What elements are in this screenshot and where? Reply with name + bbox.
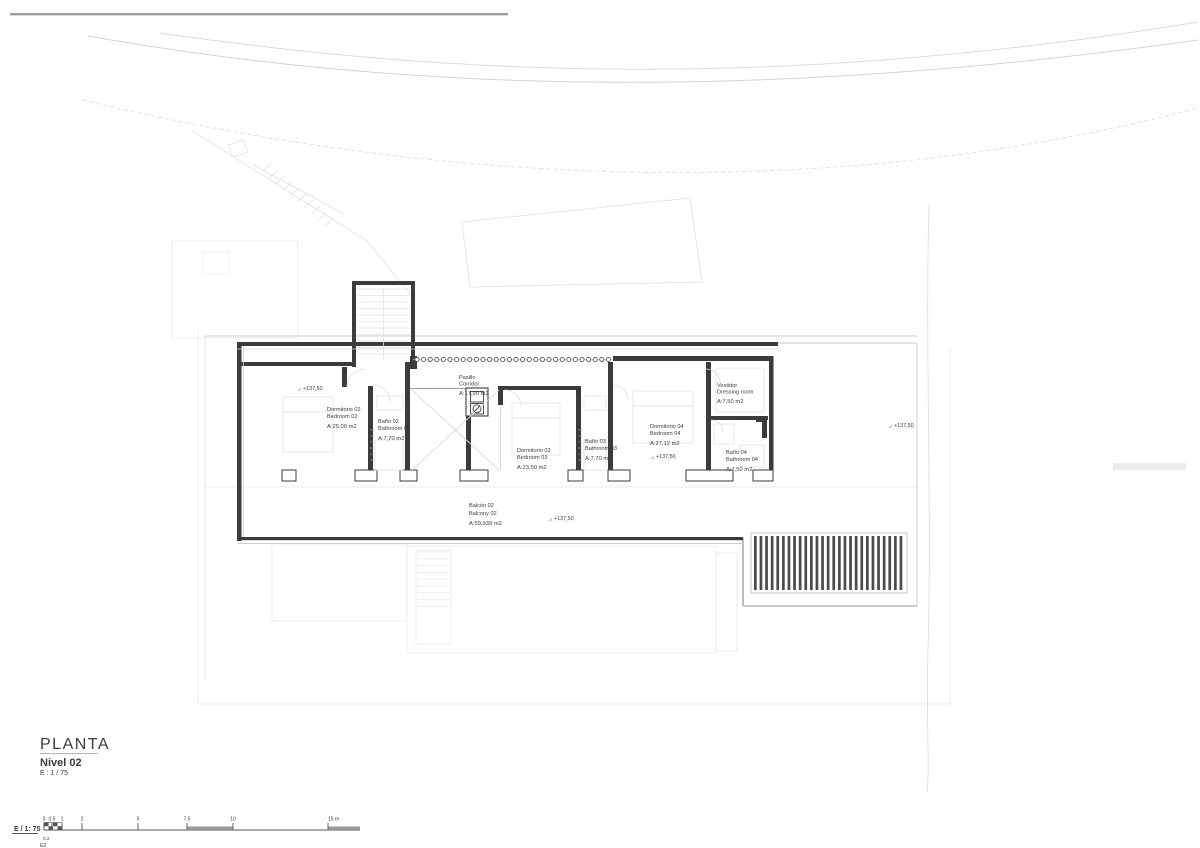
room-label-bedroom-02-es: Dormitorio 02 xyxy=(327,407,361,413)
level-mark-flag-icon xyxy=(297,387,301,391)
room-label-bathroom-04-es: Baño 04 xyxy=(726,450,747,456)
room-area-dressing-room: A:7,50 m2 xyxy=(717,399,743,405)
scale-tick-label: 15 m xyxy=(328,817,339,823)
gray-bar xyxy=(1113,463,1186,470)
scale-tick-label: 1 xyxy=(61,817,64,823)
room-label-corridor-en: Corridor xyxy=(459,382,479,388)
room-label-balcony-02-es: Balcón 02 xyxy=(469,503,494,509)
room-label-bathroom-04-en: Bathroom 04 xyxy=(726,457,758,463)
floor-plan-sheet: Dormitorio 02 Bedroom 02 A:25,00 m2 Baño… xyxy=(0,0,1200,848)
level-mark-flag-icon xyxy=(548,517,552,521)
room-area-bathroom-02: A:7,70 m2 xyxy=(378,436,404,442)
wall-accent-lines xyxy=(237,346,778,537)
room-label-bedroom-03-en: Bedroom 03 xyxy=(517,455,547,461)
room-label-bedroom-04-es: Dormitorio 04 xyxy=(650,424,684,430)
scale-tick-label: 0.5 xyxy=(49,817,56,823)
scale-tick-label: 10 xyxy=(230,817,236,823)
room-area-corridor: A:17,90 m2 xyxy=(459,391,489,397)
scale-bar: E / 1: 75 00.51257.51015 m 0.2 E2 xyxy=(12,817,360,848)
level-mark-value: +137,50 xyxy=(894,423,914,429)
room-label-dressing-room-es: Vestidor xyxy=(717,383,737,389)
scale-tick-label: 0 xyxy=(43,817,46,823)
room-label-bathroom-03-en: Bathroom 03 xyxy=(585,446,617,452)
room-label-balcony-02-en: Balcony 02 xyxy=(469,511,497,517)
room-label-bedroom-03-es: Dormitorio 03 xyxy=(517,448,551,454)
sheet-scale-note: E : 1 / 75 xyxy=(40,770,68,777)
scale-tick-label: 7.5 xyxy=(184,817,191,823)
site-hatch-band xyxy=(262,164,334,226)
sheet-top-border xyxy=(10,13,508,15)
room-area-balcony-02: A:59,939 m2 xyxy=(469,521,502,527)
room-area-bathroom-03: A:7,70 m2 xyxy=(585,456,611,462)
walls xyxy=(237,281,778,541)
pergola-louvers-icon xyxy=(751,533,907,593)
lower-stair-rungs xyxy=(417,552,450,606)
scale-bar-sheet-code: E2 xyxy=(40,843,46,848)
scale-bar-checker xyxy=(44,823,62,831)
level-mark-flag-icon xyxy=(888,424,892,428)
room-label-bathroom-03-es: Baño 03 xyxy=(585,439,606,445)
room-area-bedroom-04: A:27,12 m2 xyxy=(650,441,680,447)
room-label-bathroom-02-en: Bathroom 02 xyxy=(378,426,410,432)
column-pads xyxy=(282,470,773,481)
scale-bar-minor-tick: 0.2 xyxy=(43,836,50,841)
scale-bar-segments xyxy=(187,827,360,831)
level-mark-value: +137,50 xyxy=(303,386,323,392)
room-area-bedroom-03: A:23,50 m2 xyxy=(517,465,547,471)
level-mark-flag-icon xyxy=(650,455,654,459)
title-block: PLANTA Nivel 02 E : 1 / 75 xyxy=(40,736,110,777)
scale-tick-label: 5 xyxy=(137,817,140,823)
room-label-dressing-room-en: Dressing room xyxy=(717,390,754,396)
room-label-bedroom-04-en: Bedroom 04 xyxy=(650,431,680,437)
room-label-bathroom-02-es: Baño 02 xyxy=(378,419,399,425)
sheet-title: PLANTA xyxy=(40,736,110,753)
room-area-bedroom-02: A:25,00 m2 xyxy=(327,424,357,430)
room-label-corridor-es: Pasillo xyxy=(459,375,475,381)
sheet-level: Nivel 02 xyxy=(40,757,82,769)
shower-hatches xyxy=(370,430,582,460)
void-cross xyxy=(412,390,499,470)
level-mark-value: +137,50 xyxy=(656,454,676,460)
floor-plan-drawing: Dormitorio 02 Bedroom 02 A:25,00 m2 Baño… xyxy=(0,0,1200,848)
room-area-bathroom-04: A:7,50 m2 xyxy=(726,467,752,473)
scale-tick-label: 2 xyxy=(81,817,84,823)
level-mark-value: +137,50 xyxy=(554,516,574,522)
room-label-bedroom-02-en: Bedroom 02 xyxy=(327,414,357,420)
scale-bar-label: E / 1: 75 xyxy=(14,826,41,833)
site-contours xyxy=(10,13,1198,792)
level-marks: +137,50+137,50+137,50+137,50 xyxy=(295,386,916,522)
